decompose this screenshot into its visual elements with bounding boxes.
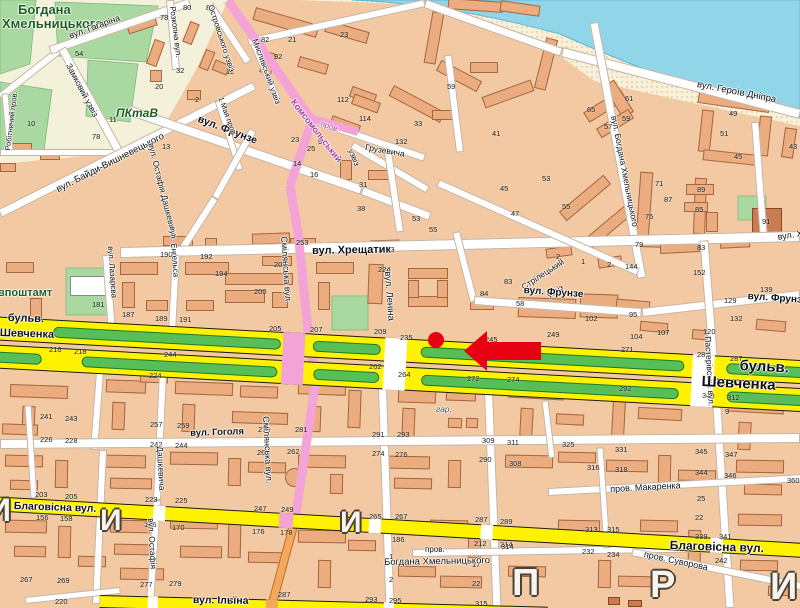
target-marker-arrow[interactable]: [464, 331, 541, 371]
marker-layer: [0, 0, 800, 608]
map-canvas: БогданаХмельницькогоПКтаВвпоштамтвул. Га…: [0, 0, 800, 608]
target-marker-dot[interactable]: [428, 332, 444, 348]
